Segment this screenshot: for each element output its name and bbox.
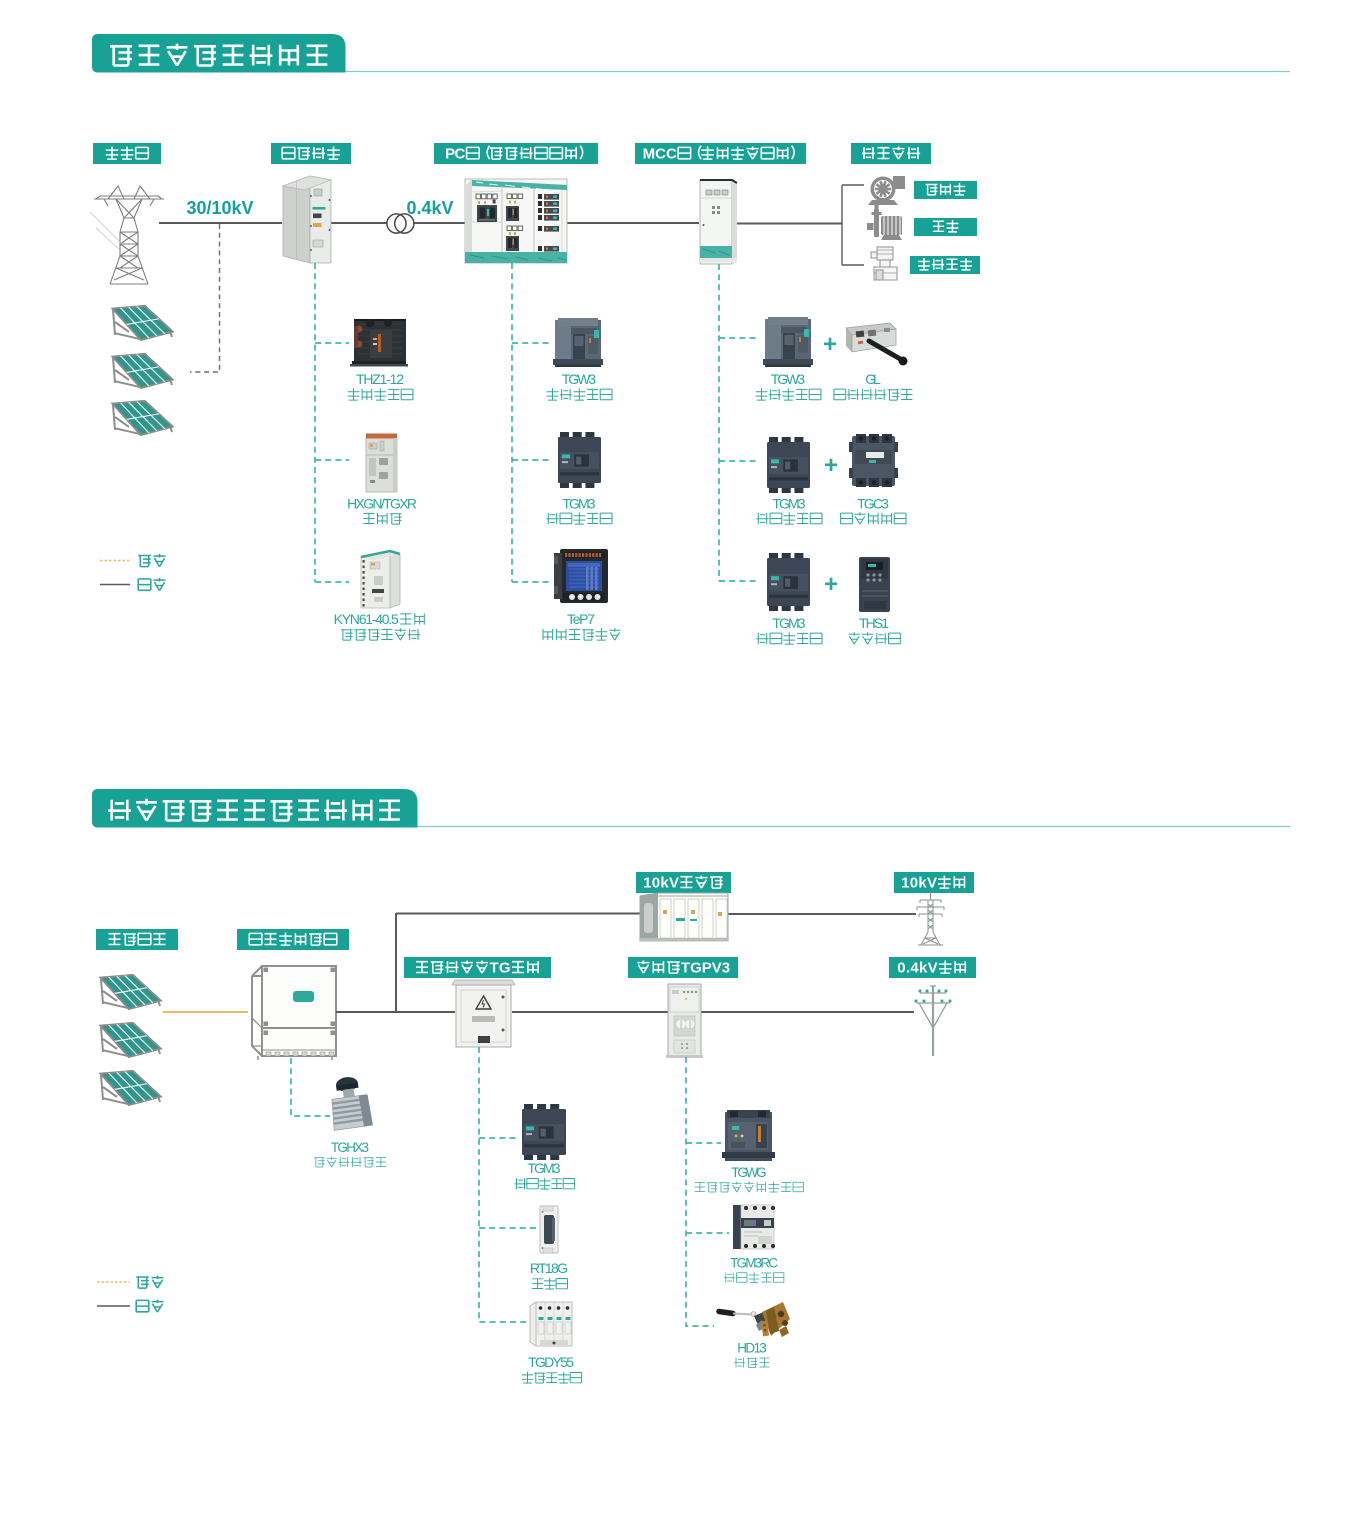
svg-text:TeP7: TeP7 xyxy=(567,611,595,627)
svg-text:RT18G: RT18G xyxy=(530,1260,568,1276)
svg-text:+: + xyxy=(824,571,838,598)
svg-text:THS1: THS1 xyxy=(859,615,889,631)
svg-text:TGM3: TGM3 xyxy=(772,615,805,631)
svg-text:+: + xyxy=(823,331,837,358)
svg-text:TGM3: TGM3 xyxy=(527,1160,560,1176)
svg-text:+: + xyxy=(824,452,838,479)
svg-text:TGW3: TGW3 xyxy=(771,371,806,387)
svg-text:HXGN/TGXR: HXGN/TGXR xyxy=(347,496,417,512)
svg-text:KYN61-40.5: KYN61-40.5 xyxy=(334,611,399,627)
svg-text:0.4kV: 0.4kV xyxy=(406,198,453,218)
svg-text:TG: TG xyxy=(490,960,511,977)
svg-text:MCC: MCC xyxy=(643,146,677,163)
svg-text:30/10kV: 30/10kV xyxy=(186,198,253,218)
svg-text:TGPV3: TGPV3 xyxy=(681,960,730,977)
svg-text:TGDY55: TGDY55 xyxy=(528,1354,574,1370)
svg-text:0.4kV: 0.4kV xyxy=(897,960,937,977)
svg-text:TGM3: TGM3 xyxy=(562,496,595,512)
svg-text:PC: PC xyxy=(445,146,465,163)
svg-text:TGM3: TGM3 xyxy=(772,496,805,512)
svg-text:TGM3RC: TGM3RC xyxy=(730,1256,778,1271)
svg-text:TGC3: TGC3 xyxy=(857,496,889,512)
svg-text:TGHX3: TGHX3 xyxy=(331,1140,369,1155)
svg-text:TGW3: TGW3 xyxy=(562,371,597,387)
svg-text:HD13: HD13 xyxy=(737,1341,767,1356)
svg-text:THZ1-12: THZ1-12 xyxy=(356,371,404,387)
svg-text:TGWG: TGWG xyxy=(731,1165,766,1180)
svg-text:10kV: 10kV xyxy=(901,875,937,892)
svg-text:GL: GL xyxy=(865,371,881,387)
svg-text:10kV: 10kV xyxy=(643,875,679,892)
